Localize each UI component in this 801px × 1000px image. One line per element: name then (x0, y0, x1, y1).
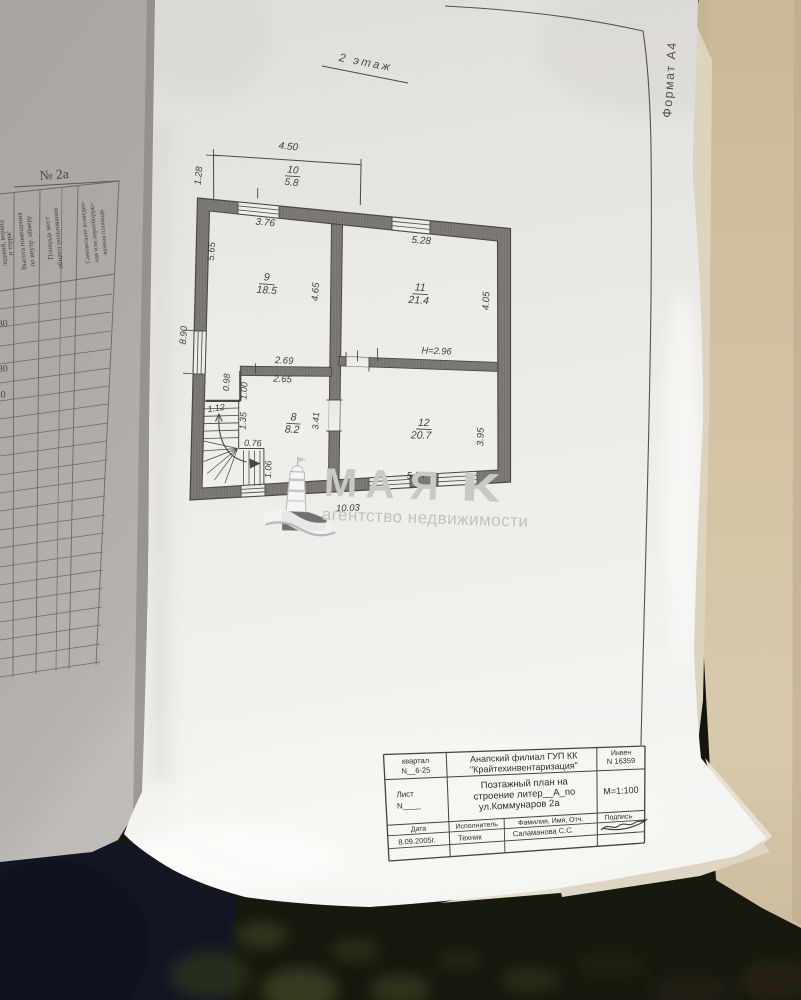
svg-text:М=1:100: М=1:100 (603, 785, 639, 797)
svg-text:5.8: 5.8 (284, 177, 299, 189)
svg-text:М: М (323, 461, 358, 506)
svg-text:40: 40 (0, 390, 6, 402)
svg-text:4.05: 4.05 (481, 291, 493, 311)
svg-text:Дата: Дата (411, 826, 427, 834)
svg-text:2.65: 2.65 (272, 373, 293, 385)
svg-text:5.65: 5.65 (206, 241, 218, 261)
svg-text:N__6-25: N__6-25 (401, 765, 430, 775)
svg-text:3.76: 3.76 (255, 217, 276, 230)
svg-text:К: К (460, 465, 501, 511)
svg-text:5.28: 5.28 (411, 235, 432, 248)
svg-text:4.50: 4.50 (278, 141, 299, 154)
svg-text:0.76: 0.76 (244, 438, 262, 448)
svg-text:8.2: 8.2 (285, 424, 300, 437)
svg-text:1.06: 1.06 (263, 460, 274, 478)
svg-text:80: 80 (0, 318, 8, 330)
svg-text:8: 8 (290, 411, 296, 423)
svg-text:1.28: 1.28 (193, 165, 206, 185)
svg-text:Лист: Лист (396, 789, 414, 799)
svg-text:Н=2.96: Н=2.96 (421, 345, 452, 356)
svg-text:№ 2а: № 2а (39, 166, 69, 183)
svg-text:2.69: 2.69 (274, 355, 295, 367)
svg-text:А: А (365, 462, 395, 507)
svg-text:11: 11 (414, 281, 426, 294)
svg-text:1.35: 1.35 (238, 411, 249, 430)
svg-text:8.90: 8.90 (178, 325, 190, 345)
svg-text:12: 12 (418, 417, 430, 429)
svg-text:18.5: 18.5 (256, 284, 277, 297)
svg-text:1.00: 1.00 (239, 382, 250, 400)
svg-text:Я: Я (409, 464, 439, 509)
svg-text:Техник: Техник (458, 832, 483, 843)
svg-text:0.98: 0.98 (221, 373, 232, 391)
svg-text:3.95: 3.95 (475, 427, 486, 446)
svg-text:21.4: 21.4 (407, 294, 429, 307)
svg-text:10: 10 (287, 164, 300, 176)
svg-text:квартал: квартал (402, 756, 430, 766)
svg-text:3.41: 3.41 (310, 412, 321, 430)
svg-text:N____: N____ (397, 801, 422, 811)
svg-text:N 16359: N 16359 (607, 756, 636, 766)
svg-text:80: 80 (0, 363, 8, 375)
svg-text:9: 9 (263, 271, 270, 283)
svg-text:4.65: 4.65 (310, 282, 322, 302)
svg-text:20.7: 20.7 (410, 429, 433, 442)
